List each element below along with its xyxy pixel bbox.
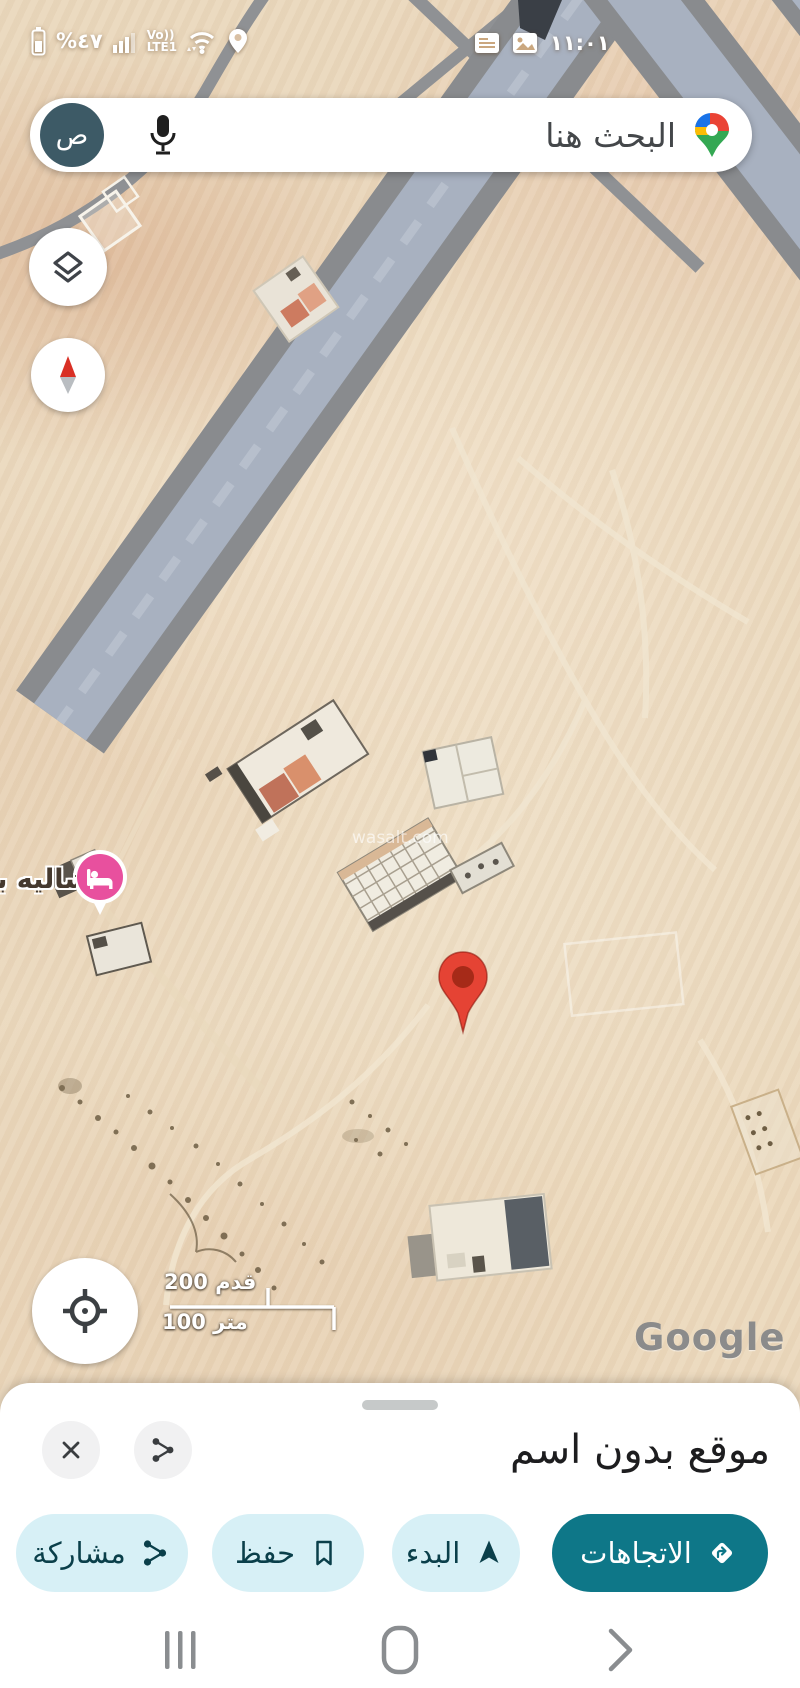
search-input[interactable]: البحث هنا [180, 116, 676, 155]
directions-label: الاتجاهات [580, 1536, 692, 1570]
share-button[interactable]: مشاركة [16, 1514, 188, 1592]
start-button[interactable]: البدء [392, 1514, 520, 1592]
drag-handle[interactable] [362, 1400, 438, 1410]
share-button-top[interactable] [134, 1421, 192, 1479]
mic-icon[interactable] [146, 111, 180, 159]
google-logo: Google [634, 1316, 785, 1359]
signal-icon [112, 28, 138, 54]
wifi-icon [186, 26, 218, 56]
watermark: wasalt.com [352, 828, 449, 848]
directions-button[interactable]: الاتجاهات [552, 1514, 768, 1592]
compass-icon [46, 353, 90, 397]
close-icon [56, 1435, 86, 1465]
home-nav-icon[interactable] [381, 1625, 419, 1675]
notes-icon [474, 30, 500, 56]
red-pin-icon [433, 948, 493, 1038]
start-label: البدء [406, 1536, 461, 1570]
clock: ١١:٠١ [550, 31, 610, 55]
share-label: مشاركة [32, 1536, 126, 1570]
crosshair-icon [59, 1285, 111, 1337]
status-bar-right: ١١:٠١ [474, 30, 610, 56]
status-bar-left: %٤٧ Vo)) LTE1 [30, 26, 249, 56]
location-icon [227, 27, 249, 55]
save-button[interactable]: حفظ [212, 1514, 364, 1592]
share-icon [147, 1434, 179, 1466]
my-location-button[interactable] [32, 1258, 138, 1364]
photo-icon [512, 30, 538, 56]
volte-label: Vo)) LTE1 [147, 29, 177, 53]
google-maps-pin-icon [692, 109, 732, 161]
poi-label: شاليه بـ [0, 864, 76, 895]
search-bar[interactable]: البحث هنا ص [30, 98, 752, 172]
scale-bar: 200 قدم 100 متر [158, 1270, 348, 1342]
battery-percent: %٤٧ [56, 29, 103, 53]
place-title: موقع بدون اسم [510, 1427, 770, 1473]
bookmark-icon [307, 1536, 341, 1570]
save-label: حفظ [235, 1536, 295, 1570]
compass-button[interactable] [31, 338, 105, 412]
layers-icon [46, 245, 90, 289]
layers-button[interactable] [29, 228, 107, 306]
close-button[interactable] [42, 1421, 100, 1479]
battery-icon [30, 26, 47, 56]
navigate-icon [472, 1536, 506, 1570]
buildings [47, 177, 800, 1283]
avatar-letter: ص [56, 120, 89, 151]
directions-icon [704, 1535, 740, 1571]
share-icon [138, 1536, 172, 1570]
phone-screen: wasalt.com شاليه بـ 200 [0, 0, 800, 1688]
satellite-map[interactable]: wasalt.com شاليه بـ 200 [0, 0, 800, 1420]
destination-pin[interactable] [433, 948, 493, 1042]
scale-meters-label: 100 متر [162, 1310, 248, 1334]
recents-nav-icon[interactable] [163, 1629, 197, 1671]
back-nav-icon[interactable] [606, 1627, 636, 1673]
map-features [0, 0, 800, 1420]
account-avatar[interactable]: ص [40, 103, 104, 167]
